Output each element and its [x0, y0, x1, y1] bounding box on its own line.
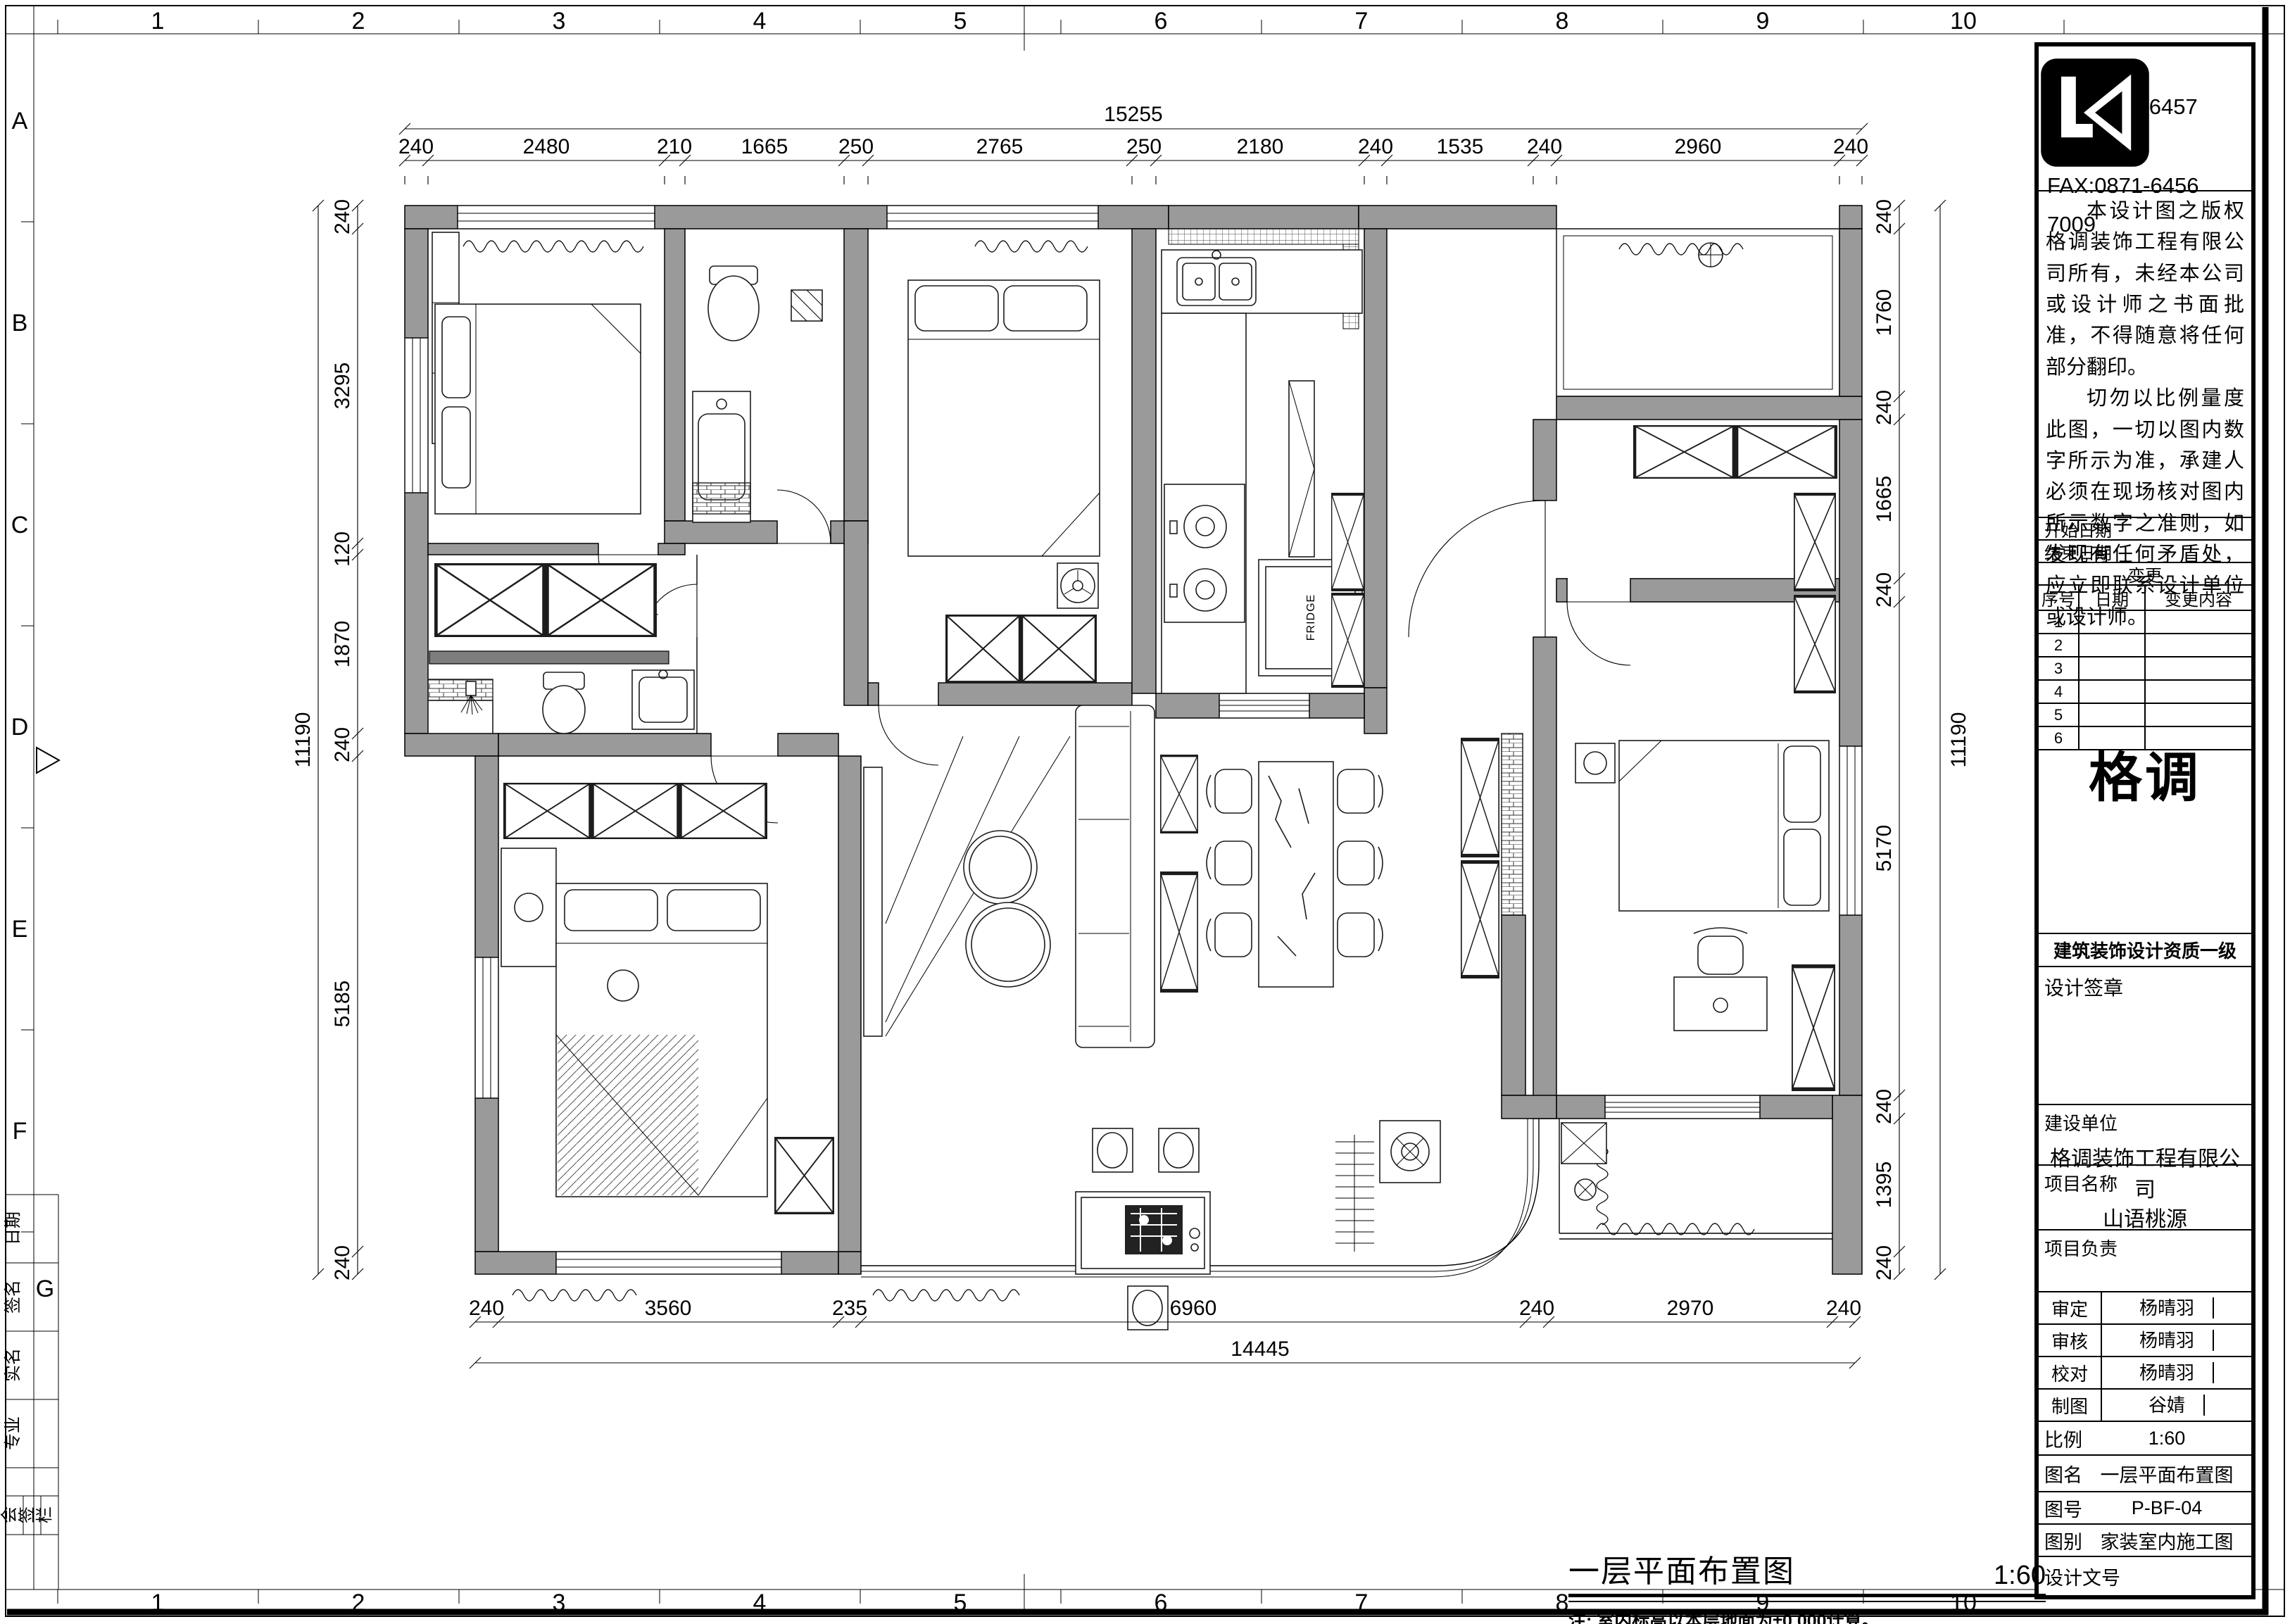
- dim-total-bottom: 14445: [1231, 1337, 1289, 1361]
- svg-text:日期: 日期: [4, 1211, 23, 1245]
- svg-text:2960: 2960: [1675, 135, 1722, 158]
- fan-icon: [1057, 563, 1098, 608]
- coffee-tables: [964, 831, 1050, 987]
- logo-mark-icon: [2039, 56, 2151, 169]
- title-underline-2: [1568, 1601, 2046, 1602]
- kitchen: FRIDGE: [1162, 250, 1364, 693]
- project-label: 项目名称: [2044, 1170, 2246, 1196]
- svg-text:会: 会: [0, 1506, 19, 1523]
- window: [458, 206, 655, 229]
- drying-rack-icon: [1335, 1135, 1374, 1252]
- dim-total-left: 11190: [291, 712, 315, 768]
- bedroom-tl: [432, 232, 655, 636]
- svg-text:3295: 3295: [331, 363, 354, 410]
- svg-text:5170: 5170: [1873, 825, 1896, 872]
- drawing-sheet: 1 2 3 4 5 6 7 8 9 10 1 2 3 4 5 6 7 8 9 1…: [0, 0, 2290, 1624]
- sofa: [1076, 705, 1155, 1047]
- drawing-title: 一层平面布置图: [1568, 1546, 1795, 1591]
- project-value: 山语桃源: [2044, 1202, 2246, 1233]
- scale-row: 比例1:60: [2039, 1422, 2251, 1456]
- dim-total-right: 11190: [1947, 712, 1970, 768]
- title-underline: [1568, 1594, 2046, 1597]
- svg-text:3560: 3560: [645, 1297, 692, 1320]
- reviewer-row: 审核杨晴羽: [2039, 1325, 2251, 1357]
- svg-text:签名: 签名: [4, 1280, 23, 1314]
- svg-text:235: 235: [832, 1297, 867, 1320]
- col-header: 变更内容: [2146, 586, 2251, 610]
- toilet-icon: [543, 672, 585, 734]
- balcony: [1335, 1121, 1606, 1252]
- table-row: 5: [2039, 704, 2251, 727]
- table-row: 3: [2039, 657, 2251, 681]
- drawing-title-bar: 一层平面布置图 1:60 注: 室内标高以本层地面为±0.000计算。: [1568, 1546, 2046, 1624]
- window: [405, 338, 428, 493]
- svg-text:250: 250: [838, 135, 874, 158]
- client-section: 建设单位 格调装饰工程有限公司: [2039, 1105, 2251, 1166]
- brand-name: 格调: [2089, 750, 2201, 807]
- master-bedroom: [501, 783, 833, 1213]
- basin-icon: [632, 670, 694, 729]
- svg-text:1665: 1665: [741, 135, 788, 158]
- svg-text:10: 10: [1950, 8, 1977, 34]
- lead-label: 项目负责: [2044, 1235, 2246, 1261]
- dim-total-top: 15255: [1104, 103, 1162, 126]
- sliding-door: [1219, 693, 1309, 718]
- svg-text:6: 6: [1155, 1590, 1168, 1616]
- svg-text:4: 4: [753, 1590, 767, 1616]
- svg-text:A: A: [12, 108, 28, 134]
- svg-text:1: 1: [151, 1590, 165, 1616]
- svg-text:专业: 专业: [4, 1416, 23, 1450]
- svg-text:5: 5: [954, 8, 967, 34]
- svg-text:1395: 1395: [1873, 1162, 1896, 1209]
- svg-text:栏: 栏: [35, 1506, 54, 1523]
- window: [556, 1252, 781, 1274]
- change-table: 序号 日期 变更内容 1 2 3 4 5 6: [2039, 586, 2251, 750]
- svg-text:G: G: [36, 1276, 54, 1302]
- svg-text:2180: 2180: [1237, 135, 1284, 158]
- svg-text:签: 签: [18, 1506, 37, 1523]
- svg-text:240: 240: [1873, 572, 1896, 608]
- svg-text:1760: 1760: [1873, 289, 1896, 336]
- sliding-door: [1605, 1095, 1760, 1119]
- project-section: 项目名称 山语桃源: [2039, 1166, 2251, 1230]
- design-doc-row: 设计文号: [2039, 1557, 2251, 1595]
- drawing-number-row: 图号P-BF-04: [2039, 1492, 2251, 1525]
- svg-text:240: 240: [1519, 1297, 1554, 1320]
- title-block: TEL:0871-6457 2009 FAX:0871-6456 7009 本设…: [2034, 42, 2256, 1599]
- svg-text:3: 3: [553, 1590, 566, 1616]
- svg-text:4: 4: [753, 8, 767, 34]
- end-date-row: 结束日期: [2039, 541, 2251, 563]
- bathroom-top: [693, 266, 822, 522]
- svg-text:3: 3: [553, 8, 566, 34]
- certification: 建筑装饰设计资质一级: [2039, 933, 2251, 966]
- design-seal: 设计签章: [2039, 967, 2251, 1105]
- svg-text:C: C: [11, 512, 29, 539]
- bedroom-right: [1575, 426, 1836, 1089]
- terrace-railing: [1556, 229, 1839, 396]
- svg-text:F: F: [13, 1118, 27, 1145]
- svg-text:240: 240: [1527, 135, 1562, 158]
- washer-icon: [1380, 1121, 1440, 1183]
- floor-drain-icon: [1575, 1179, 1596, 1200]
- table-row: 6: [2039, 727, 2251, 749]
- svg-text:6: 6: [1155, 8, 1168, 34]
- mop-sink-icon: [1561, 1123, 1606, 1164]
- svg-text:E: E: [12, 916, 28, 943]
- svg-text:2480: 2480: [523, 135, 570, 158]
- svg-text:240: 240: [331, 199, 354, 234]
- svg-text:240: 240: [469, 1297, 504, 1320]
- svg-text:7: 7: [1355, 8, 1369, 34]
- drawing-name-row: 图名一层平面布置图: [2039, 1456, 2251, 1492]
- approver-row: 审定杨晴羽: [2039, 1292, 2251, 1325]
- kitchen-sink-icon: [1177, 251, 1256, 306]
- ruler-col: 1: [151, 8, 165, 34]
- svg-text:250: 250: [1126, 135, 1162, 158]
- svg-text:D: D: [11, 714, 29, 741]
- desk-chair: [1674, 928, 1767, 1031]
- client-label: 建设单位: [2044, 1109, 2246, 1135]
- table-row: 2: [2039, 634, 2251, 657]
- lead-section: 项目负责: [2039, 1230, 2251, 1292]
- svg-text:240: 240: [398, 135, 434, 158]
- svg-text:8: 8: [1556, 8, 1569, 34]
- svg-text:5185: 5185: [331, 981, 354, 1028]
- fridge-label: FRIDGE: [1305, 594, 1317, 641]
- svg-text:240: 240: [1833, 135, 1868, 158]
- svg-text:1535: 1535: [1437, 135, 1484, 158]
- svg-text:1665: 1665: [1873, 476, 1896, 523]
- dining-set: [1207, 762, 1383, 987]
- table-row: 1: [2039, 611, 2251, 634]
- svg-text:240: 240: [331, 727, 354, 762]
- note-paragraph: 本设计图之版权格调装饰工程有限公司所有，未经本公司或设计师之书面批准，不得随意将…: [2046, 196, 2244, 383]
- svg-text:7: 7: [1355, 1590, 1369, 1616]
- table-row: 4: [2039, 681, 2251, 704]
- svg-text:240: 240: [331, 1245, 354, 1280]
- bedroom-2: [908, 280, 1100, 682]
- drawing-scale: 1:60: [1994, 1561, 2046, 1591]
- proofreader-row: 校对杨晴羽: [2039, 1357, 2251, 1390]
- drawing-category-row: 图别家装室内施工图: [2039, 1525, 2251, 1557]
- svg-text:240: 240: [1358, 135, 1393, 158]
- svg-text:240: 240: [1873, 390, 1896, 425]
- svg-text:210: 210: [657, 135, 692, 158]
- svg-text:2: 2: [352, 1590, 365, 1616]
- elevation-note: 注: 室内标高以本层地面为±0.000计算。: [1568, 1607, 2046, 1624]
- svg-text:6960: 6960: [1170, 1297, 1217, 1320]
- start-date-row: 开始日期: [2039, 518, 2251, 541]
- svg-text:1870: 1870: [331, 621, 354, 668]
- window: [475, 957, 498, 1098]
- svg-text:9: 9: [1756, 8, 1770, 34]
- col-header: 日期: [2080, 586, 2146, 610]
- company-logo: 格调 建筑装饰设计资质一级: [2039, 750, 2251, 967]
- svg-text:240: 240: [1873, 1089, 1896, 1124]
- window: [1839, 746, 1862, 915]
- svg-text:2970: 2970: [1667, 1297, 1714, 1320]
- svg-text:2765: 2765: [976, 135, 1024, 158]
- window: [887, 206, 1098, 229]
- svg-text:2: 2: [352, 8, 365, 34]
- svg-text:240: 240: [1873, 1245, 1896, 1280]
- svg-text:B: B: [12, 310, 28, 336]
- svg-text:5: 5: [954, 1590, 967, 1616]
- floor-plan-svg: 1 2 3 4 5 6 7 8 9 10 1 2 3 4 5 6 7 8 9 1…: [0, 0, 2290, 1624]
- copyright-notes: 本设计图之版权格调装饰工程有限公司所有，未经本公司或设计师之书面批准，不得随意将…: [2039, 191, 2251, 518]
- drafter-row: 制图谷婧: [2039, 1390, 2251, 1422]
- cooktop-icon: [1164, 484, 1245, 622]
- svg-text:240: 240: [1873, 199, 1896, 234]
- svg-text:240: 240: [1826, 1297, 1861, 1320]
- svg-text:实名: 实名: [4, 1348, 23, 1382]
- svg-text:120: 120: [331, 531, 354, 567]
- change-header: 变更: [2039, 563, 2251, 586]
- svg-text:8: 8: [1556, 1590, 1569, 1616]
- col-header: 序号: [2039, 586, 2080, 610]
- living-dining: [864, 705, 1499, 1330]
